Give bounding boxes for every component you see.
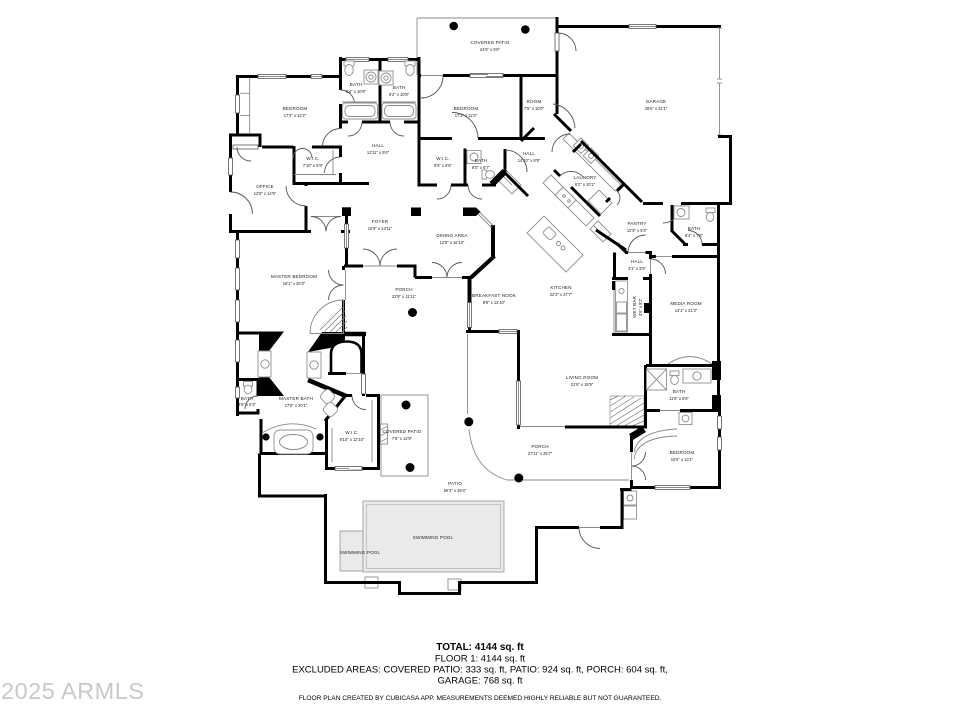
svg-text:3'6" x 6'3": 3'6" x 6'3" [238, 402, 256, 407]
svg-text:8'0" x 6'7": 8'0" x 6'7" [472, 165, 490, 170]
svg-text:MASTER BATH: MASTER BATH [279, 396, 313, 401]
svg-text:17'3" x 12'2": 17'3" x 12'2" [284, 113, 307, 118]
svg-text:11'9" x 6'6": 11'9" x 6'6" [669, 396, 689, 401]
svg-text:7'5" x 10'0": 7'5" x 10'0" [524, 106, 545, 111]
svg-text:18'1" x 20'3": 18'1" x 20'3" [283, 281, 306, 286]
svg-text:17'8" x 20'1": 17'8" x 20'1" [285, 403, 308, 408]
svg-text:6'4" x 7'8": 6'4" x 7'8" [685, 233, 703, 238]
svg-text:24'5" x 9'6": 24'5" x 9'6" [480, 47, 501, 52]
svg-text:HALL: HALL [523, 151, 535, 156]
svg-text:BEDROOM: BEDROOM [670, 450, 695, 455]
svg-text:FLOOR 1: 4144 sq. ft: FLOOR 1: 4144 sq. ft [435, 654, 526, 665]
svg-text:GARAGE: 768 sq. ft: GARAGE: 768 sq. ft [437, 676, 522, 687]
svg-text:DINING AREA: DINING AREA [436, 233, 468, 238]
svg-text:W.I.C.: W.I.C. [306, 156, 319, 161]
svg-text:LAUNDRY: LAUNDRY [574, 175, 597, 180]
svg-text:SWIMMING POOL: SWIMMING POOL [340, 550, 381, 555]
svg-text:BATH: BATH [393, 85, 406, 90]
svg-text:WET BAR: WET BAR [632, 296, 637, 318]
svg-text:PORCH: PORCH [395, 287, 412, 292]
svg-text:KITCHEN: KITCHEN [550, 285, 571, 290]
svg-text:8'5" x 5'8": 8'5" x 5'8" [434, 163, 452, 168]
svg-text:15'6" x 13'1": 15'6" x 13'1" [671, 457, 694, 462]
svg-text:12'11" x 9'4": 12'11" x 9'4" [367, 150, 390, 155]
svg-text:W.I.C.: W.I.C. [345, 430, 358, 435]
svg-text:BATH: BATH [350, 82, 363, 87]
svg-text:4'6" x 9'2": 4'6" x 9'2" [638, 298, 643, 316]
svg-text:TOTAL: 4144 sq. ft: TOTAL: 4144 sq. ft [436, 642, 524, 653]
svg-text:MEDIA ROOM: MEDIA ROOM [670, 301, 701, 306]
svg-text:BATH: BATH [673, 389, 686, 394]
svg-text:HALL: HALL [631, 259, 643, 264]
svg-text:26'6" x 31'1": 26'6" x 31'1" [645, 106, 668, 111]
svg-text:HALL: HALL [372, 143, 384, 148]
svg-text:BATH: BATH [475, 158, 488, 163]
svg-text:12'8" x 16'10": 12'8" x 16'10" [440, 240, 465, 245]
svg-text:2025 ARMLS: 2025 ARMLS [1, 678, 144, 704]
svg-text:21'5" x 18'9": 21'5" x 18'9" [571, 382, 594, 387]
svg-text:GARAGE: GARAGE [646, 99, 667, 104]
svg-text:12'9" x 9'3": 12'9" x 9'3" [627, 228, 648, 233]
svg-text:SWIMMING POOL: SWIMMING POOL [413, 535, 454, 540]
svg-text:6'2" x 10'8": 6'2" x 10'8" [389, 92, 410, 97]
svg-text:6'2" x 10'1": 6'2" x 10'1" [575, 182, 596, 187]
svg-text:W.I.C.: W.I.C. [436, 156, 449, 161]
svg-text:4'1" x 3'9": 4'1" x 3'9" [628, 266, 646, 271]
svg-text:OFFICE: OFFICE [256, 184, 274, 189]
svg-text:66'3" x 49'4": 66'3" x 49'4" [444, 488, 467, 493]
svg-text:PANTRY: PANTRY [627, 221, 646, 226]
svg-text:ROOM: ROOM [527, 99, 542, 104]
svg-text:6'4" x 10'8": 6'4" x 10'8" [346, 89, 367, 94]
svg-text:8'10" x 12'10": 8'10" x 12'10" [340, 437, 365, 442]
svg-text:7'8" x 12'9": 7'8" x 12'9" [392, 436, 413, 441]
svg-text:FOYER: FOYER [372, 219, 389, 224]
svg-text:FLOOR PLAN CREATED BY CUBICASA: FLOOR PLAN CREATED BY CUBICASA APP. MEAS… [299, 695, 662, 702]
svg-text:PORCH: PORCH [531, 444, 548, 449]
svg-text:COVERED PATIO: COVERED PATIO [470, 40, 509, 45]
svg-text:13'1" x 21'3": 13'1" x 21'3" [675, 308, 698, 313]
svg-text:BATH: BATH [688, 226, 701, 231]
svg-text:BEDROOM: BEDROOM [283, 106, 308, 111]
svg-text:MASTER BEDROOM: MASTER BEDROOM [271, 274, 317, 279]
svg-text:14'10" x 8'9": 14'10" x 8'9" [518, 158, 541, 163]
svg-text:8'9" x 12'10": 8'9" x 12'10" [483, 300, 506, 305]
svg-text:22'3" x 27'7": 22'3" x 27'7" [550, 292, 573, 297]
svg-text:15'9" x 13'11": 15'9" x 13'11" [368, 226, 393, 231]
svg-text:7'10" x 5'9": 7'10" x 5'9" [303, 163, 324, 168]
svg-text:27'11" x 25'7": 27'11" x 25'7" [528, 451, 553, 456]
svg-text:BEDROOM: BEDROOM [454, 106, 479, 111]
svg-text:17'2" x 12'2": 17'2" x 12'2" [455, 113, 478, 118]
svg-text:EXCLUDED AREAS: COVERED PATIO:: EXCLUDED AREAS: COVERED PATIO: 333 sq. f… [292, 665, 668, 676]
svg-text:BREAKFAST NOOK: BREAKFAST NOOK [472, 293, 517, 298]
svg-text:12'8" x 14'5": 12'8" x 14'5" [254, 191, 277, 196]
svg-text:LIVING ROOM: LIVING ROOM [566, 375, 598, 380]
svg-text:22'9" x 11'11": 22'9" x 11'11" [392, 294, 417, 299]
svg-text:PATIO: PATIO [448, 481, 462, 486]
svg-text:BATH: BATH [241, 396, 254, 401]
svg-text:COVERED PATIO: COVERED PATIO [382, 429, 421, 434]
